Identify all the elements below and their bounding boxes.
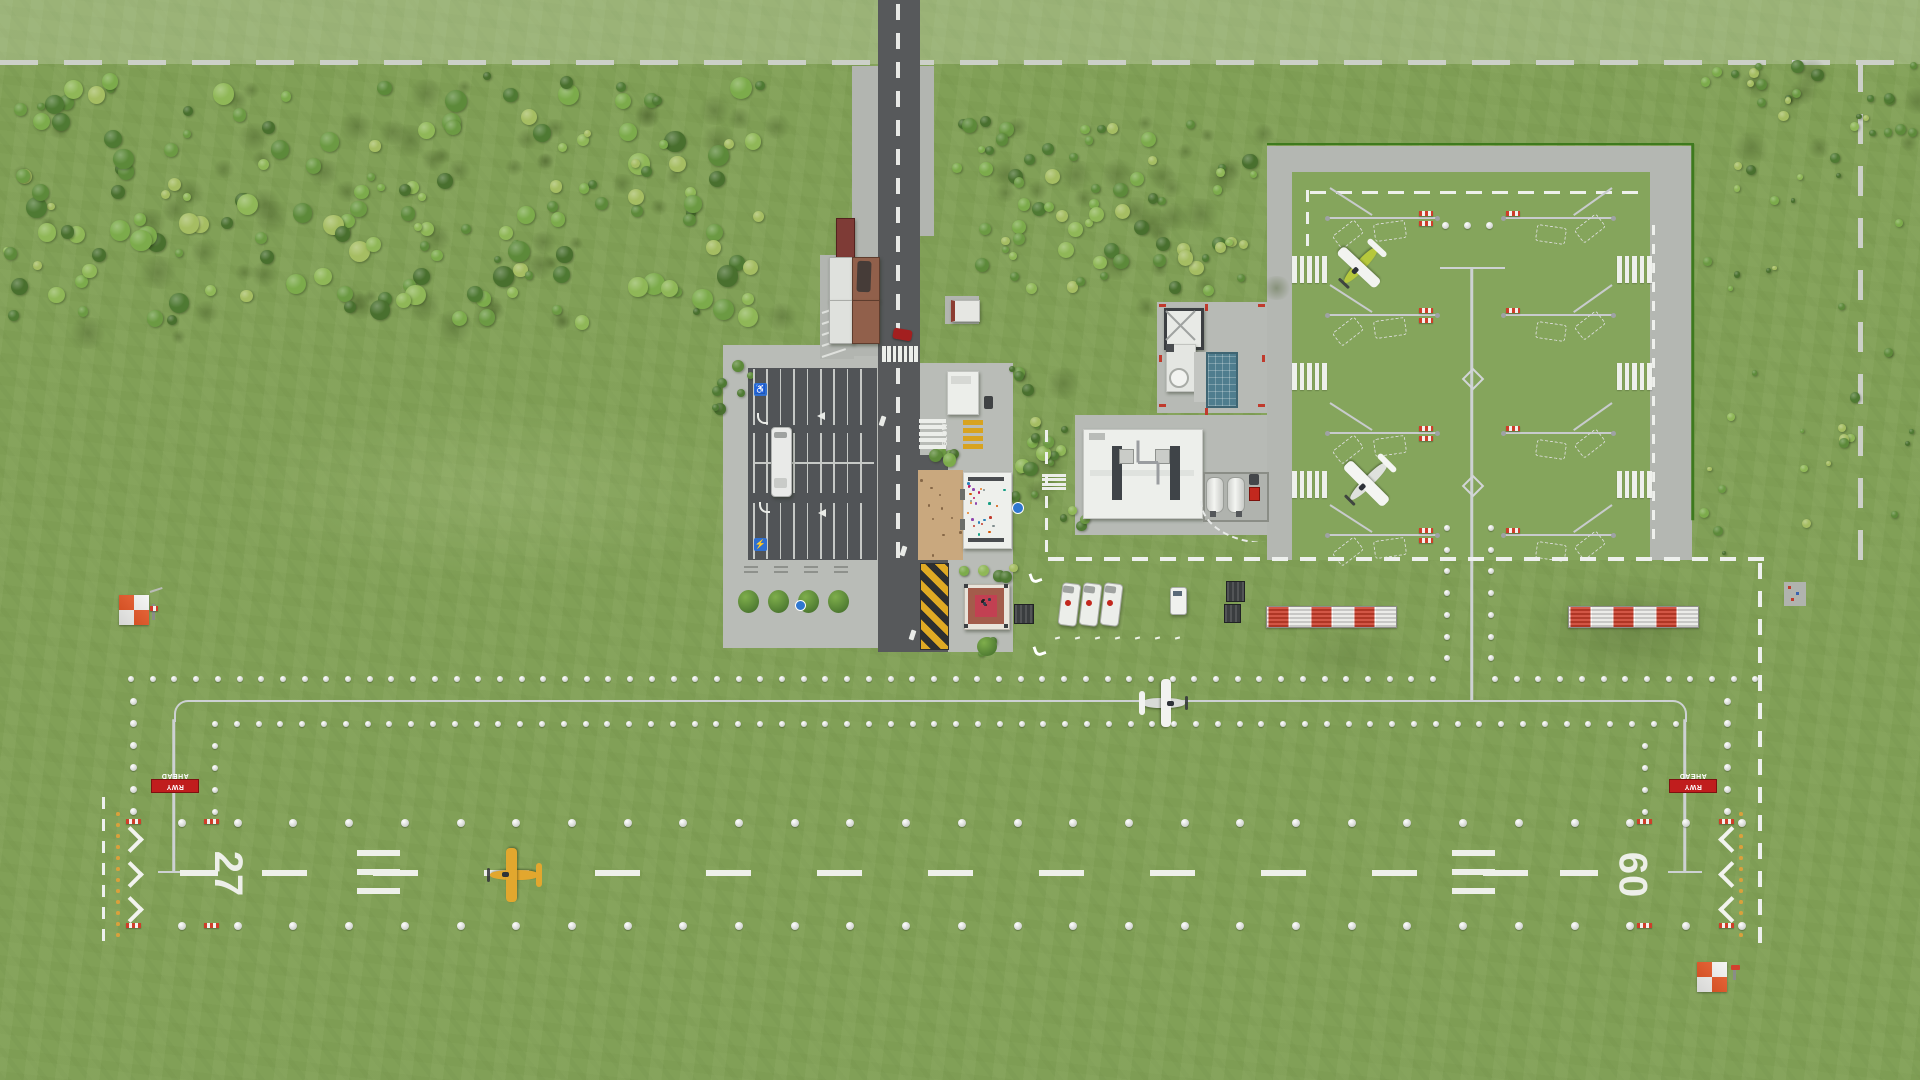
checkered-marker-west[interactable] — [119, 595, 149, 625]
threshold-boundary-dash — [102, 885, 105, 897]
tree — [1068, 506, 1077, 515]
white-taxiing-aircraft-fus — [1167, 701, 1174, 706]
tree — [258, 159, 269, 170]
edge-marker-dot — [1106, 721, 1112, 727]
edge-marker-dot — [1629, 721, 1635, 727]
ops-boundary-dash — [1045, 474, 1048, 486]
runway-centerline-dash — [1372, 870, 1417, 876]
boundary-dash — [1858, 530, 1863, 560]
dark-van[interactable] — [856, 261, 871, 292]
tree — [1727, 413, 1735, 421]
tree — [575, 315, 590, 330]
tree — [1839, 438, 1849, 448]
tree — [64, 80, 84, 100]
boundary-dash — [1858, 478, 1863, 508]
tree — [110, 220, 130, 240]
fuel-tank[interactable] — [1206, 477, 1224, 513]
boundary-dash — [960, 60, 998, 65]
parking-stall-line — [780, 369, 782, 425]
edge-marker-dot — [1191, 676, 1197, 682]
apron-dash — [1652, 377, 1655, 387]
tree — [401, 206, 416, 221]
edge-marker-dot — [1442, 222, 1449, 229]
pickup-windshield — [1173, 591, 1182, 596]
edge-marker-dot — [1014, 819, 1022, 827]
tree — [979, 162, 993, 176]
tree — [130, 230, 151, 251]
edge-marker-dot — [1408, 676, 1414, 682]
lane-arrow-west — [817, 412, 825, 420]
edge-marker-dot — [345, 922, 353, 930]
edge-marker-dot — [1673, 721, 1679, 727]
orange-dot — [1739, 812, 1743, 816]
grass-tick — [1135, 636, 1140, 639]
tree — [1068, 222, 1083, 237]
tiedown-marker — [1419, 426, 1433, 431]
tree — [1713, 526, 1723, 536]
boundary-dash — [1216, 60, 1254, 65]
apron-dash — [1652, 510, 1655, 520]
tree — [1250, 171, 1257, 178]
equipment-crate[interactable] — [1014, 604, 1034, 624]
boundary-dash — [1536, 60, 1574, 65]
edge-marker-dot — [1542, 721, 1548, 727]
apron-dash — [1652, 244, 1655, 254]
edge-marker-dot — [1724, 698, 1731, 705]
tree — [709, 171, 725, 187]
edge-marker-dot — [604, 721, 610, 727]
tree — [1216, 168, 1225, 177]
edge-marker-dot — [512, 819, 520, 827]
tree — [1045, 169, 1060, 184]
tiedown-marker — [1419, 528, 1433, 533]
apron-dash — [1306, 190, 1309, 202]
edge-marker-dot — [1348, 819, 1356, 827]
edge-marker-dot — [1237, 721, 1243, 727]
apron-dash — [1306, 212, 1309, 224]
orange-dot — [116, 922, 120, 926]
ops-boundary-dash — [1045, 496, 1048, 508]
edge-marker-dot — [388, 676, 394, 682]
edge-marker-dot — [386, 721, 392, 727]
edge-marker-dot — [735, 922, 743, 930]
edge-marker-dot — [1181, 819, 1189, 827]
threshold-boundary-dash — [102, 797, 105, 809]
tree — [556, 246, 572, 262]
edge-marker-dot — [1128, 721, 1134, 727]
grass-tick — [1155, 636, 1160, 639]
yellow-taildragger-aircraft-tail — [536, 863, 542, 887]
roof-vent — [1089, 433, 1105, 440]
edge-marker-dot — [1731, 676, 1737, 682]
ops-boundary-dash — [1440, 557, 1456, 561]
planter-bush — [828, 590, 849, 613]
speed-stripe — [963, 444, 983, 449]
tree — [985, 146, 994, 155]
runway-edge-marker — [1637, 819, 1652, 824]
apron-dash — [1652, 396, 1655, 406]
boundary-dash — [64, 60, 102, 65]
edge-marker-dot — [280, 676, 286, 682]
bus-stop-shelter[interactable] — [951, 300, 980, 322]
terminal-roof-strip — [968, 538, 1004, 542]
edge-marker-dot — [679, 819, 687, 827]
parking-stall-line — [847, 503, 849, 559]
parking-canopy-white[interactable] — [829, 257, 854, 301]
edge-marker-dot — [1459, 922, 1467, 930]
runway-centerline-dash — [817, 870, 862, 876]
ops-boundary-dash — [1758, 843, 1762, 859]
tree — [1791, 198, 1795, 202]
tree — [1042, 143, 1054, 155]
forest-floor — [192, 301, 220, 324]
tree — [377, 81, 391, 95]
boundary-dash — [1858, 62, 1863, 92]
runway-centerline-dash — [595, 870, 640, 876]
ops-boundary-dash — [1045, 540, 1048, 552]
edge-marker-dot — [212, 809, 218, 815]
edge-marker-dot — [866, 721, 872, 727]
courtyard-speck — [920, 479, 923, 482]
tree — [717, 265, 739, 287]
threshold-boundary-dash — [102, 841, 105, 853]
tree — [1213, 185, 1223, 195]
edge-marker-dot — [1564, 721, 1570, 727]
edge-marker-dot — [1083, 676, 1089, 682]
parking-canopy-brown[interactable] — [852, 300, 880, 344]
edge-marker-dot — [958, 819, 966, 827]
tiedown-marker — [1419, 436, 1433, 441]
forest-floor — [408, 79, 444, 108]
grass-tick — [1055, 636, 1060, 639]
yellow-taildragger-aircraft[interactable] — [487, 846, 545, 904]
tree — [205, 285, 216, 296]
tree — [262, 121, 275, 134]
tree — [1800, 429, 1804, 433]
terminal-canopy — [960, 519, 965, 530]
orange-dot — [116, 900, 120, 904]
tiedown-anchor — [1435, 216, 1440, 221]
forest-floor — [1261, 276, 1292, 300]
road-centerline-dash — [896, 120, 900, 136]
edge-marker-dot — [1181, 922, 1189, 930]
tree — [745, 133, 762, 150]
boundary-dash — [1858, 426, 1863, 456]
edge-marker-dot — [1367, 721, 1373, 727]
edge-marker-dot — [866, 676, 872, 682]
bike-rack[interactable] — [744, 566, 758, 568]
tiedown-marker — [1419, 318, 1433, 323]
tree — [88, 86, 105, 103]
walkway — [1194, 352, 1206, 402]
ops-boundary-dash — [1758, 871, 1762, 887]
edge-marker-dot — [512, 922, 520, 930]
tree — [755, 81, 764, 90]
gate-barrier-east[interactable] — [1568, 606, 1699, 628]
road-centerline-dash — [896, 397, 900, 413]
tiedown-marker — [1419, 211, 1433, 216]
edge-marker-dot — [517, 721, 523, 727]
road-centerline-dash — [896, 33, 900, 49]
dark-car[interactable] — [984, 396, 993, 409]
taxiway-runway-join — [1668, 871, 1702, 874]
equipment-crate[interactable] — [1226, 581, 1245, 602]
edge-marker-dot — [1213, 676, 1219, 682]
tree — [616, 82, 626, 92]
runway-centerline-dash — [262, 870, 307, 876]
pad-mark — [1791, 598, 1794, 601]
orange-dot — [1739, 845, 1743, 849]
forest-floor — [1899, 135, 1920, 152]
edge-marker-dot — [457, 922, 465, 930]
apron-taxilane-tee — [1440, 267, 1505, 270]
pad-tiedown-mark — [1205, 408, 1208, 415]
tree — [550, 180, 563, 193]
road-centerline-dash — [896, 426, 900, 442]
tree — [1031, 491, 1038, 498]
apron-dash — [1570, 191, 1586, 194]
edge-marker-dot — [822, 721, 828, 727]
pad-mark — [1788, 586, 1791, 589]
ops-boundary-dash — [1328, 557, 1344, 561]
tree — [1728, 286, 1733, 291]
edge-marker-dot — [958, 922, 966, 930]
parking-stall-line — [793, 503, 795, 559]
pad-tiedown-mark — [1205, 304, 1208, 311]
crosswalk-stripe — [887, 346, 891, 362]
tree — [959, 566, 968, 575]
pavilion-post — [1004, 584, 1008, 588]
edge-marker-dot — [1062, 721, 1068, 727]
speed-stripe — [963, 428, 983, 433]
tree — [467, 286, 483, 302]
tree — [1048, 459, 1054, 465]
tree — [281, 91, 291, 101]
tree — [16, 169, 30, 183]
person — [982, 599, 985, 602]
parking-stall-line — [780, 503, 782, 559]
tree — [1802, 519, 1811, 528]
edge-marker-dot — [130, 720, 137, 727]
boundary-dash — [640, 60, 678, 65]
tree — [306, 158, 321, 173]
tree — [1026, 283, 1037, 294]
tree — [588, 180, 597, 189]
runway-centerline-dash — [1261, 870, 1306, 876]
ops-boundary-dash — [1758, 759, 1762, 775]
tree — [1237, 274, 1245, 282]
edge-marker-dot — [1687, 676, 1693, 682]
tree — [420, 222, 434, 236]
tree — [996, 133, 1008, 145]
checkered-marker-east[interactable] — [1697, 962, 1727, 992]
edge-marker-dot — [258, 676, 264, 682]
edge-marker-dot — [1642, 743, 1648, 749]
tree — [743, 260, 758, 275]
tree — [335, 226, 351, 242]
tree — [1178, 250, 1193, 265]
fuel-pump[interactable] — [1210, 511, 1216, 517]
ops-boundary-dash — [1758, 927, 1762, 943]
tree — [271, 140, 290, 159]
parking-canopy-white[interactable] — [829, 300, 854, 344]
info-marker-icon[interactable] — [795, 600, 806, 611]
tree — [1169, 281, 1181, 293]
tiedown-row-line — [1327, 534, 1437, 536]
tree — [377, 184, 385, 192]
forest-floor — [137, 256, 178, 289]
edge-marker-dot — [626, 721, 632, 727]
edge-marker-dot — [953, 721, 959, 727]
tree — [712, 404, 719, 411]
bike-rack — [804, 571, 818, 573]
pad-tiedown-mark — [1159, 355, 1162, 362]
ops-boundary-dash — [1636, 557, 1652, 561]
parking-stall-line — [847, 369, 849, 425]
tree — [1093, 256, 1107, 270]
edge-marker-dot — [1324, 721, 1330, 727]
apron-dash — [1310, 191, 1326, 194]
person — [1003, 489, 1006, 492]
tiedown-row-line — [1327, 314, 1437, 316]
tree — [1734, 162, 1742, 170]
fuel-tank[interactable] — [1227, 477, 1245, 513]
tree — [706, 224, 723, 241]
edge-marker-dot — [452, 721, 458, 727]
tree — [1215, 242, 1225, 252]
tree — [706, 240, 721, 255]
edge-marker-dot — [1125, 819, 1133, 827]
edge-marker-dot — [432, 676, 438, 682]
tree — [1712, 67, 1723, 78]
edge-marker-dot — [997, 721, 1003, 727]
ops-boundary-dash — [1552, 557, 1568, 561]
edge-marker-dot — [1348, 922, 1356, 930]
tiedown-anchor — [1611, 216, 1616, 221]
boundary-dash — [832, 60, 870, 65]
gate-barrier-west[interactable] — [1266, 606, 1397, 628]
boundary-dash — [1280, 60, 1318, 65]
runway-edge-marker — [1719, 923, 1734, 928]
runway-edge-marker — [126, 923, 141, 928]
tree — [683, 214, 696, 227]
tiedown-anchor — [1501, 313, 1506, 318]
fuel-pump-unit[interactable] — [1249, 474, 1259, 485]
white-taxiing-aircraft[interactable] — [1136, 677, 1188, 729]
tiedown-anchor — [1325, 431, 1330, 436]
tree — [1797, 174, 1804, 181]
edge-marker-dot — [539, 721, 545, 727]
rwy-ahead-sign-left[interactable]: RWY AHEAD — [151, 779, 199, 793]
forest-floor — [170, 330, 187, 343]
edge-marker-dot — [1682, 819, 1690, 827]
edge-marker-dot — [1571, 922, 1579, 930]
tree — [1867, 95, 1873, 101]
edge-marker-dot — [1126, 676, 1132, 682]
boundary-dash — [1600, 60, 1638, 65]
edge-marker-dot — [1724, 786, 1731, 793]
fuel-pump[interactable] — [1236, 511, 1242, 517]
edge-marker-dot — [277, 721, 283, 727]
road-centerline-dash — [896, 149, 900, 165]
road-slow-marking: SLOW — [942, 423, 949, 446]
ops-boundary-dash — [1758, 563, 1762, 579]
tree — [1703, 257, 1711, 265]
ops-boundary-dash — [1496, 557, 1512, 561]
rwy-ahead-sign-right[interactable]: RWY AHEAD — [1669, 779, 1717, 793]
tree — [713, 299, 734, 320]
tiedown-marker — [1419, 221, 1433, 226]
apron-dash — [1652, 263, 1655, 273]
edge-marker-dot — [1642, 787, 1648, 793]
bike-rack[interactable] — [804, 566, 818, 568]
orange-dot — [116, 845, 120, 849]
edge-marker-dot — [1300, 676, 1306, 682]
edge-marker-dot — [1585, 721, 1591, 727]
tree — [147, 310, 164, 327]
edge-marker-dot — [130, 786, 137, 793]
tree — [1186, 120, 1195, 129]
tree — [431, 250, 442, 261]
edge-marker-dot — [888, 676, 894, 682]
edge-marker-dot — [1389, 721, 1395, 727]
tree — [213, 83, 234, 104]
tree — [452, 311, 467, 326]
ops-boundary-dash — [1048, 557, 1064, 561]
edge-marker-dot — [649, 676, 655, 682]
apron-concrete-east — [1650, 146, 1692, 560]
pavilion-post — [964, 624, 968, 628]
tree — [1746, 165, 1756, 175]
orange-dot — [116, 933, 120, 937]
edge-marker-dot — [846, 922, 854, 930]
bike-rack[interactable] — [834, 566, 848, 568]
edge-marker-dot — [902, 922, 910, 930]
forest-floor — [189, 240, 221, 265]
transit-stop-icon[interactable] — [1012, 502, 1024, 514]
threshold-boundary-dash — [102, 819, 105, 831]
edge-marker-dot — [1444, 634, 1450, 640]
displaced-threshold-chevron — [117, 826, 144, 853]
equipment-crate[interactable] — [1224, 604, 1241, 623]
forest-floor — [1176, 144, 1195, 159]
tree — [1895, 219, 1903, 227]
ladder-marking — [1292, 363, 1327, 390]
edge-marker-dot — [648, 721, 654, 727]
tree — [260, 250, 274, 264]
boundary-dash — [1408, 60, 1446, 65]
tree — [1756, 79, 1767, 90]
tree — [1134, 220, 1149, 235]
bike-rack[interactable] — [774, 566, 788, 568]
edge-marker-dot — [1193, 721, 1199, 727]
orange-dot — [1739, 900, 1743, 904]
tree — [1838, 303, 1845, 310]
apron-dash — [1652, 529, 1655, 539]
tiedown-marker — [1419, 308, 1433, 313]
edge-marker-dot — [627, 676, 633, 682]
displaced-threshold-chevron — [117, 861, 144, 888]
tree — [742, 293, 754, 305]
roof-pipe — [1157, 462, 1160, 484]
edge-marker-dot — [562, 676, 568, 682]
tree — [1242, 154, 1258, 170]
red-utility-building[interactable] — [836, 218, 855, 260]
ops-boundary-dash — [1300, 557, 1316, 561]
pavilion-red-mat — [975, 595, 997, 617]
tree — [1752, 370, 1758, 376]
tree — [1141, 132, 1156, 147]
